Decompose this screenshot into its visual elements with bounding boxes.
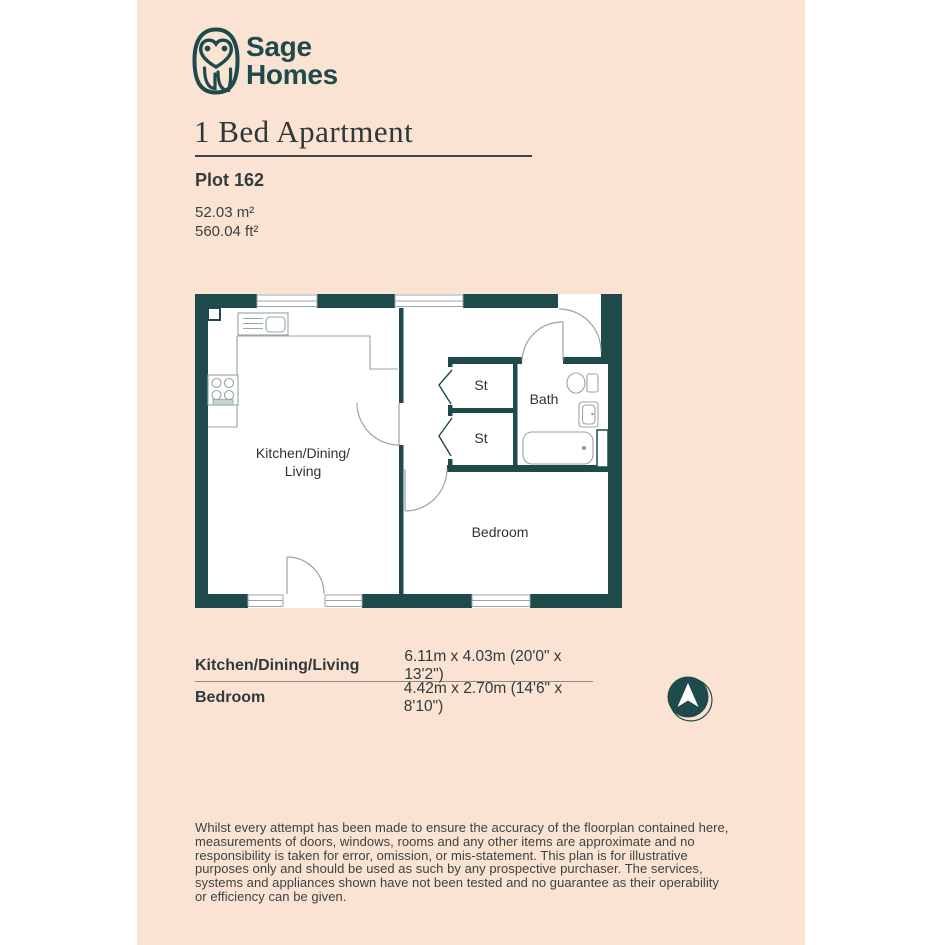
brand-wordmark: Sage Homes xyxy=(246,33,338,89)
sink-bowl-icon xyxy=(266,317,285,332)
floor-areas: 52.03 m² 560.04 ft² xyxy=(195,203,258,241)
toilet-bowl-icon xyxy=(567,373,585,393)
storage2-label: St xyxy=(474,430,487,446)
table-row: Bedroom 4.42m x 2.70m (14'6" x 8'10") xyxy=(195,682,593,713)
bedroom-label: Bedroom xyxy=(472,524,529,540)
disclaimer-text: Whilst every attempt has been made to en… xyxy=(195,821,732,904)
table-row: Kitchen/Dining/Living 6.11m x 4.03m (20'… xyxy=(195,650,593,682)
area-square-feet: 560.04 ft² xyxy=(195,222,258,241)
room-name: Bedroom xyxy=(195,689,404,707)
north-compass-icon xyxy=(663,672,717,726)
room-size: 4.42m x 2.70m (14'6" x 8'10") xyxy=(404,680,593,716)
kitchen-label-2: Living xyxy=(285,463,322,479)
kitchen-label: Kitchen/Dining/ xyxy=(256,445,350,461)
sage-homes-owl-logo-icon xyxy=(191,27,241,95)
floor-plan: Kitchen/Dining/ Living Bedroom Bath St S… xyxy=(195,293,622,608)
brand-line-2: Homes xyxy=(246,61,338,89)
service-void xyxy=(597,430,608,467)
page-title: 1 Bed Apartment xyxy=(194,114,413,150)
plot-number: Plot 162 xyxy=(195,170,264,191)
title-underline xyxy=(195,155,532,157)
area-square-metres: 52.03 m² xyxy=(195,203,258,222)
dimensions-table: Kitchen/Dining/Living 6.11m x 4.03m (20'… xyxy=(195,650,593,713)
column xyxy=(208,308,220,320)
toilet-cistern-icon xyxy=(587,374,598,392)
brand-line-1: Sage xyxy=(246,33,338,61)
storage1-label: St xyxy=(474,377,487,393)
room-size: 6.11m x 4.03m (20'0" x 13'2") xyxy=(404,648,593,684)
room-name: Kitchen/Dining/Living xyxy=(195,657,404,675)
bath-label: Bath xyxy=(530,391,559,407)
